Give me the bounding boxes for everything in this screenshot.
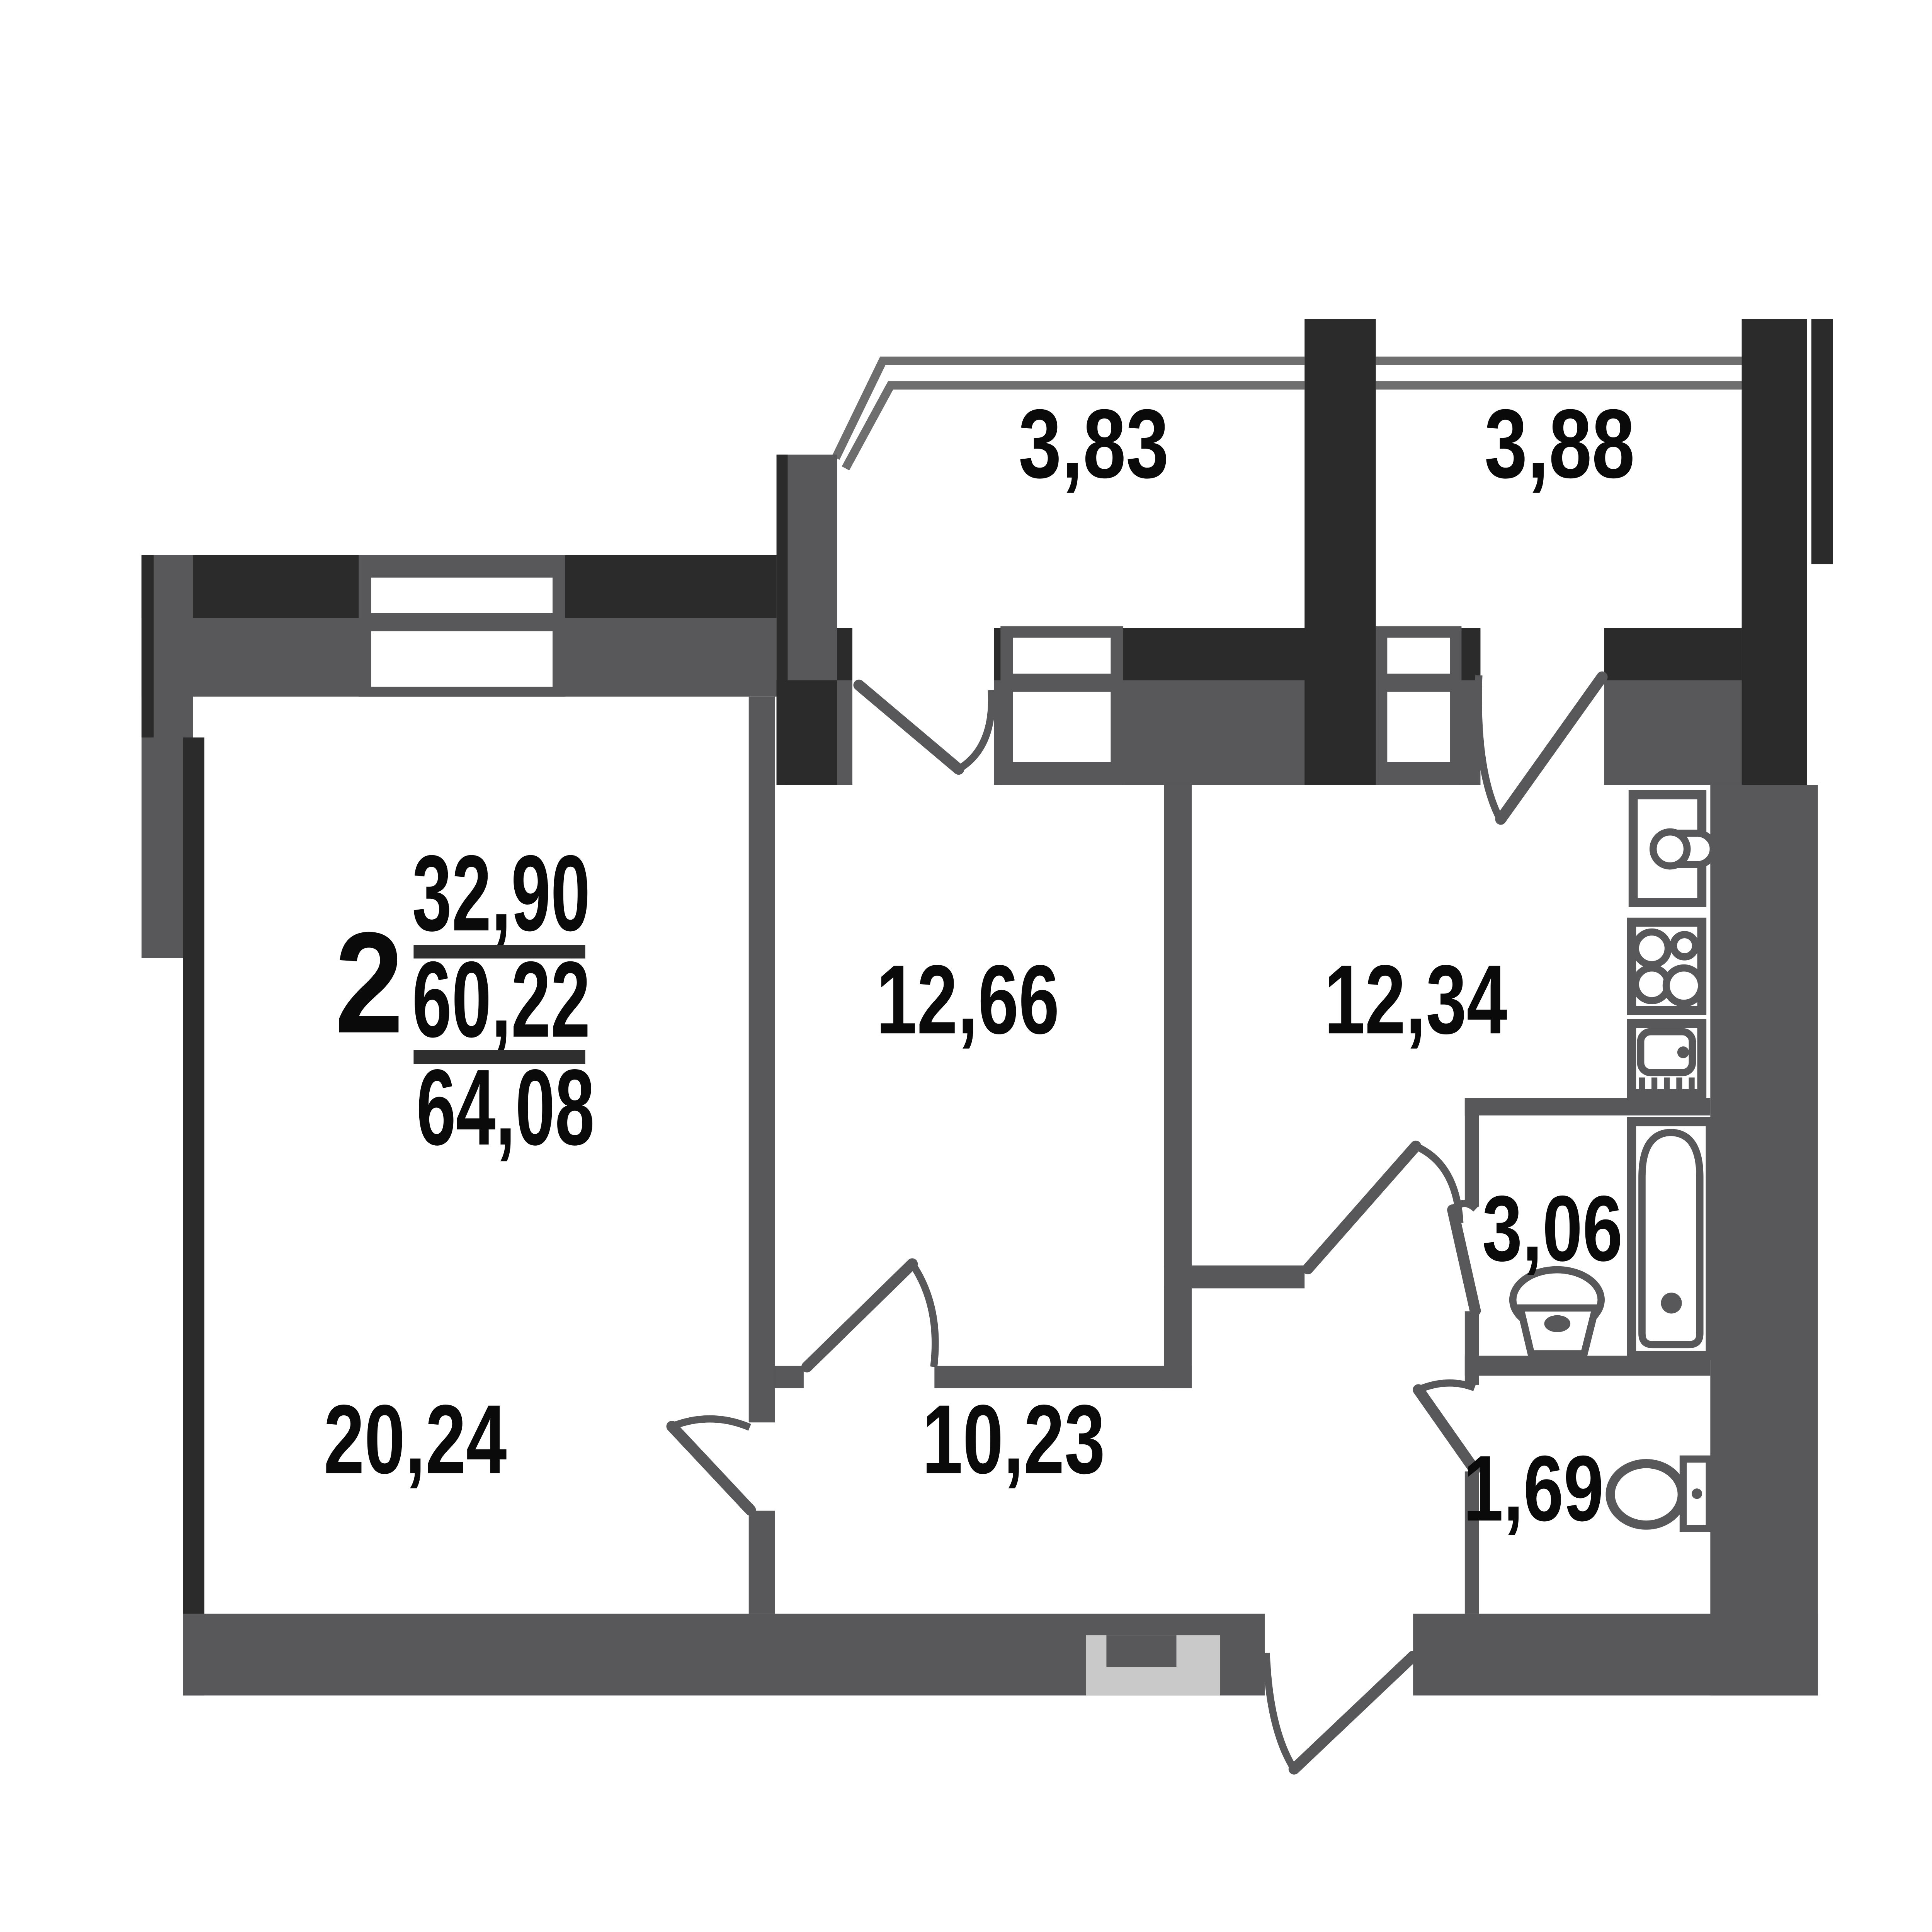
living-area-label: 32,90 (412, 833, 590, 954)
kitchen-sink-drain (1653, 832, 1687, 866)
balcony-left-area-label: 3,83 (1019, 389, 1169, 498)
window-balcony-left-pane-outer (1013, 638, 1111, 673)
pillar-balcony-left (777, 455, 837, 785)
pillar-between-balconies (1304, 319, 1376, 785)
total-area-label: 64,08 (417, 1047, 595, 1168)
wall-bottom-right (1413, 1614, 1818, 1696)
balcony-left-doorway (852, 625, 1123, 785)
window-balcony-left-pane-inner (1013, 692, 1111, 762)
wall-bedroom-bottom-a (775, 1366, 803, 1388)
wash-basin-icon (1513, 1270, 1601, 1354)
wall-outer-right-top-edge (1811, 319, 1833, 564)
balcony-right-area-label: 3,88 (1485, 389, 1635, 498)
living-room-area-label: 20,24 (324, 1384, 507, 1494)
pillar-left-dark-base (777, 680, 837, 785)
toilet-area-label: 1,69 (1463, 1437, 1604, 1541)
window-living-pane-inner (371, 631, 553, 687)
kitchen-sink-icon (1633, 795, 1713, 903)
stove-burner-4 (1666, 968, 1701, 1003)
stove-burner-2 (1673, 935, 1696, 957)
bathtub-drain (1661, 1293, 1682, 1313)
bedroom-area-label: 12,66 (876, 944, 1060, 1054)
kitchen-fixtures (1631, 795, 1713, 1094)
wall-bathroom-top (1465, 1098, 1710, 1116)
washing-machine-icon (1631, 1024, 1702, 1094)
stove-icon (1631, 922, 1702, 1010)
wall-left-thin (183, 738, 204, 1696)
washing-machine-knob (1677, 1046, 1689, 1058)
entry-niche-block (1106, 1635, 1176, 1667)
apartment-area-label: 60,22 (412, 939, 590, 1060)
window-living (359, 555, 565, 696)
hallway-area-label: 10,23 (922, 1384, 1105, 1494)
stove-burner-1 (1636, 932, 1668, 965)
bathroom-area-label: 3,06 (1482, 1177, 1623, 1281)
window-living-pane-outer (371, 578, 553, 613)
toilet-bowl (1610, 1464, 1682, 1525)
toilet-button (1692, 1488, 1702, 1499)
wall-living-divider-upper (749, 697, 775, 1422)
window-balcony-right-pane-inner (1387, 692, 1450, 762)
kitchen-area-label: 12,34 (1324, 944, 1507, 1054)
bathtub-icon (1631, 1122, 1710, 1355)
wall-left-outer-dark-edge (141, 555, 153, 737)
wall-right-outer (1710, 785, 1818, 1696)
floor-plan: 2 32,90 60,22 64,08 3,83 3,88 12,66 12,3… (0, 0, 1932, 1932)
wall-bedroom-kitchen-divider (1164, 785, 1192, 1388)
toilet-bowl-icon (1610, 1459, 1709, 1528)
wall-living-divider-lower (749, 1511, 775, 1614)
wash-basin-drain (1544, 1315, 1570, 1332)
floor-plan-page: 2 32,90 60,22 64,08 3,83 3,88 12,66 12,3… (0, 0, 1932, 1932)
wall-kitchen-bottom-stub (1164, 1265, 1304, 1288)
wall-bathroom-left-a (1465, 1098, 1479, 1207)
room-count-label: 2 (335, 902, 403, 1063)
window-balcony-right-pane-outer (1387, 638, 1450, 673)
pillar-balcony-right-end (1742, 319, 1807, 785)
